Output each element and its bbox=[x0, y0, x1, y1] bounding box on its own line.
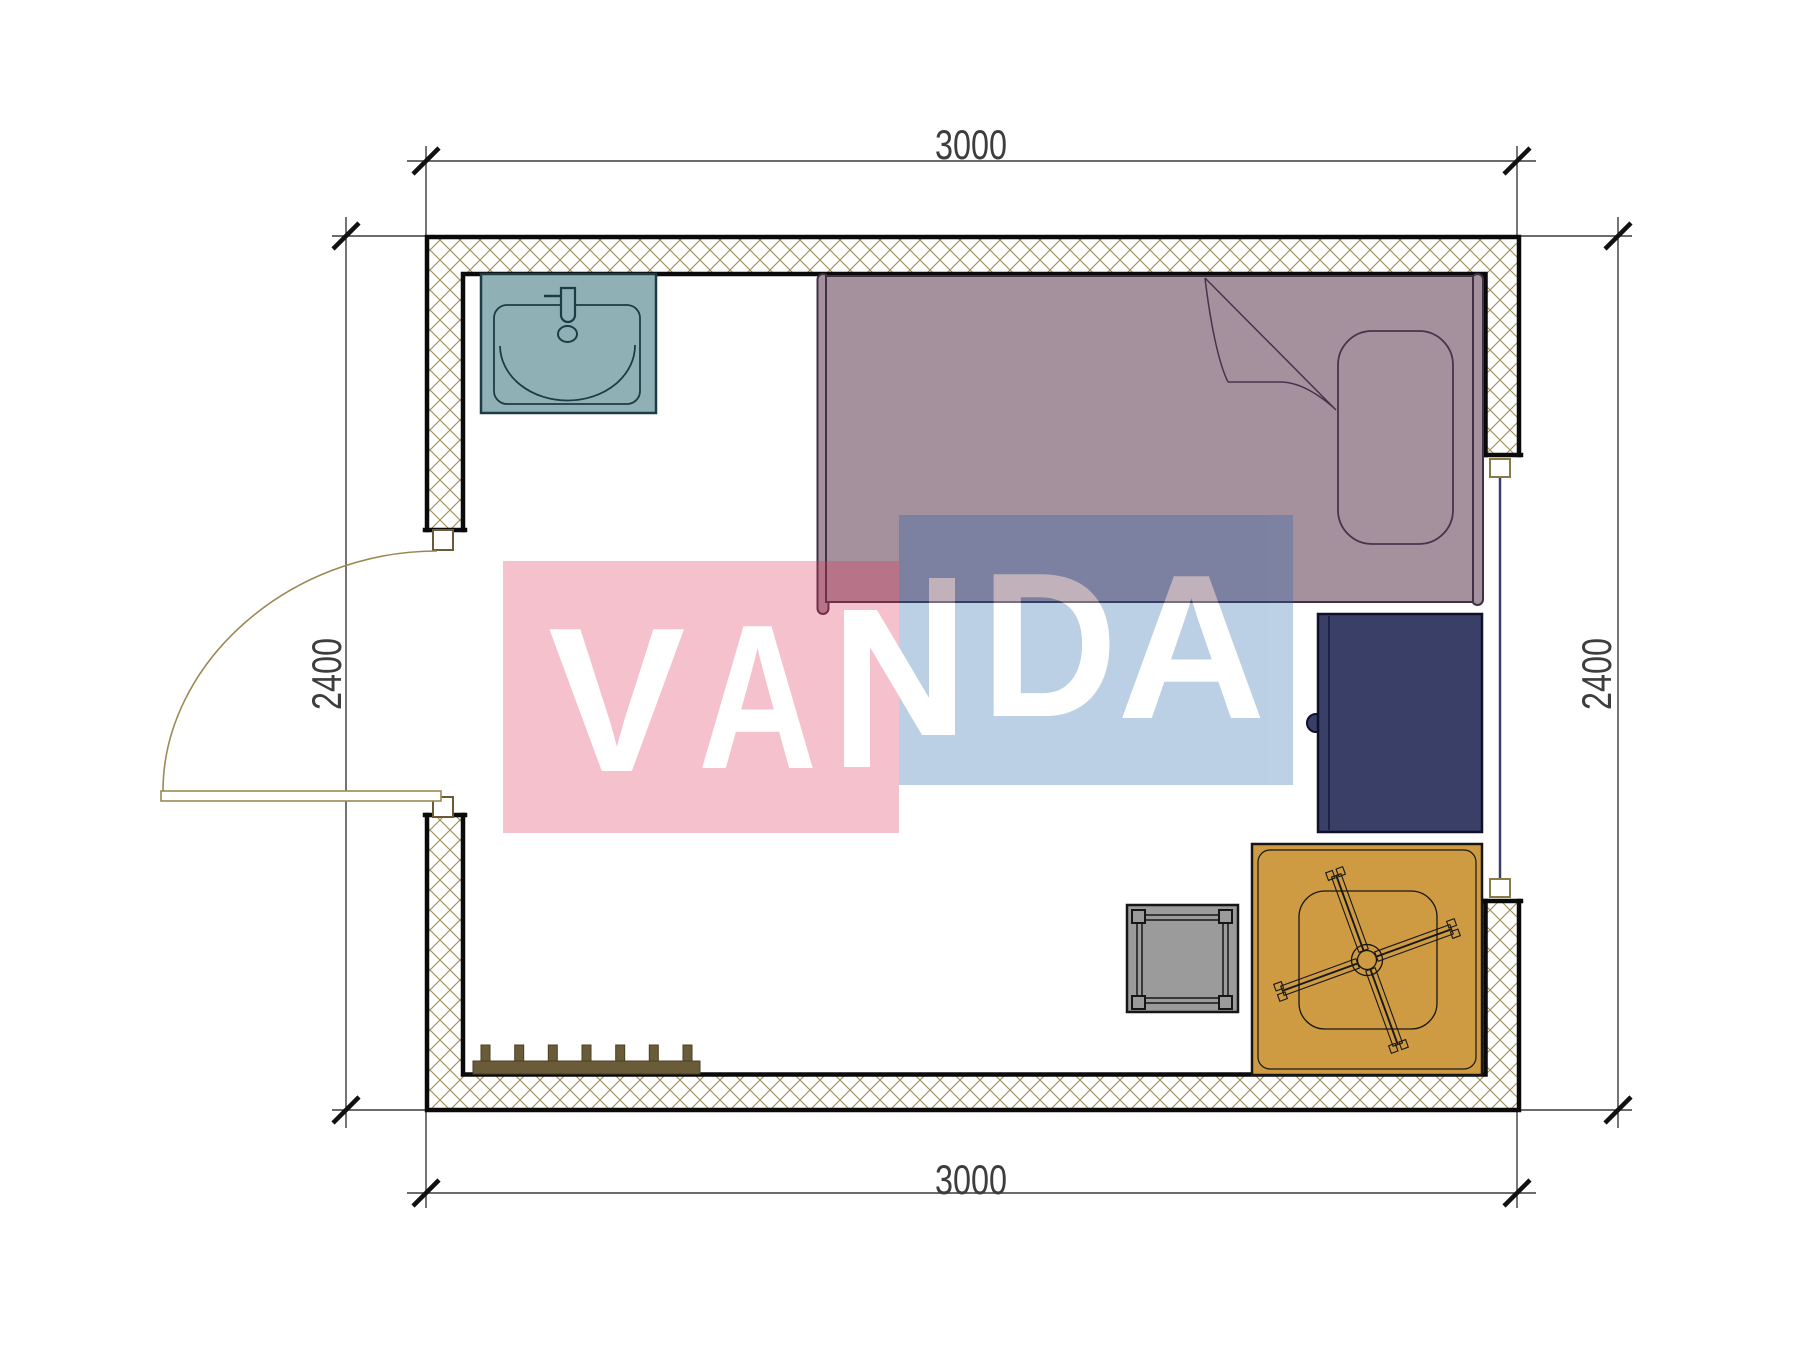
svg-text:A: A bbox=[1117, 532, 1266, 762]
svg-text:3000: 3000 bbox=[935, 121, 1007, 168]
svg-text:V: V bbox=[548, 585, 685, 815]
svg-text:2400: 2400 bbox=[303, 638, 350, 710]
svg-text:A: A bbox=[698, 581, 817, 812]
svg-text:D: D bbox=[981, 529, 1117, 759]
svg-text:2400: 2400 bbox=[1573, 638, 1620, 710]
svg-text:3000: 3000 bbox=[935, 1156, 1007, 1203]
